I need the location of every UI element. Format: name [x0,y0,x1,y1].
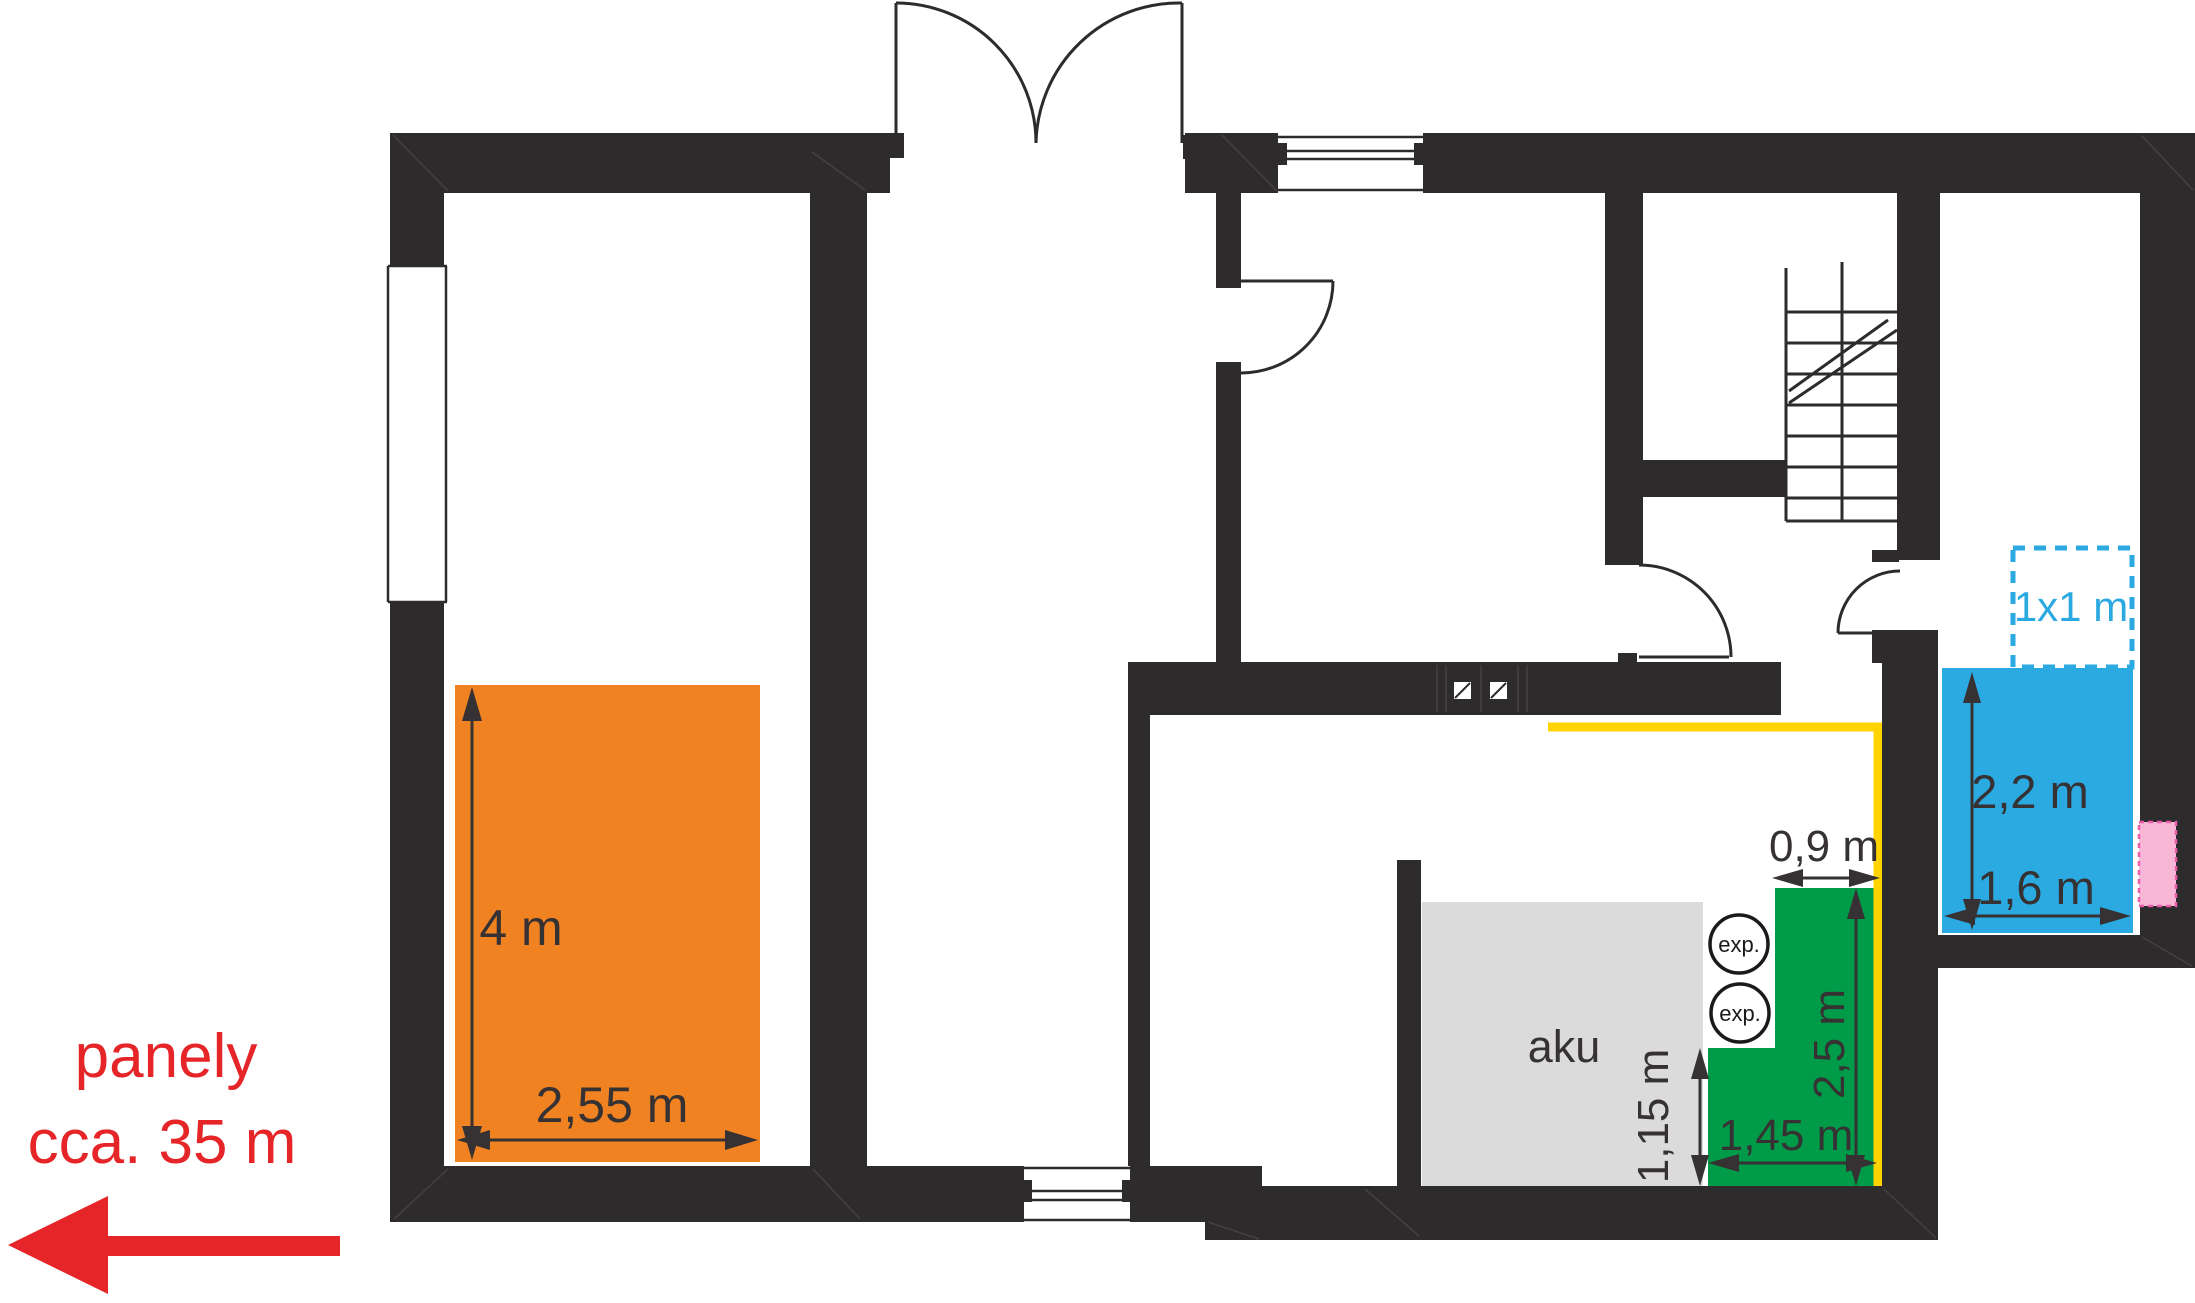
dimension-green-bottom-width: 1,45 m [1708,1111,1877,1172]
flue-symbol [1489,681,1508,700]
wall-segment [1216,372,1241,664]
dimension-label: 2,5 m [1805,989,1854,1099]
wall-segment [390,133,890,193]
door-jamb [1605,552,1643,565]
dimension-label: 2,55 m [536,1077,689,1133]
floor-plan: 4 m 2,55 m 0,9 m 2,5 m 1,45 m 1,15 m 2,2… [0,0,2195,1303]
expansion-vessel-symbol: exp. [1711,984,1769,1042]
door-room-to-stairs [1639,565,1731,657]
door-stairs-to-right [1838,571,1900,633]
door-jamb [1618,653,1637,664]
wall-segment [1937,935,2195,968]
wall-segment [1397,860,1421,1186]
wall-segment [1872,630,1938,663]
window-left [386,265,447,603]
wall-segment [1605,193,1643,552]
panel-note-line1: panely [75,1022,258,1091]
wall-segment [1423,133,2195,193]
panel-direction-arrow [8,1196,340,1294]
pink-marker [2139,822,2176,906]
window-top [1278,133,1423,193]
double-entry-door [896,3,1182,143]
dimension-label: 4 m [479,900,562,956]
dimension-label: 1,6 m [1977,861,2095,914]
wall-segment [1216,193,1241,278]
aku-label: aku [1528,1021,1601,1072]
dimension-label: 1,15 m [1629,1049,1678,1184]
panel-note-line2: cca. 35 m [28,1108,297,1177]
door-jamb [1216,362,1241,372]
door-jamb [1216,278,1241,288]
flue-symbol [1453,681,1472,700]
dimension-label: 0,9 m [1769,822,1879,871]
wall-segment [1643,460,1787,497]
dimension-label: 2,2 m [1971,765,2089,818]
wall-segment [390,1166,1262,1222]
door-jamb [1183,135,1201,159]
door-hall-to-room [1241,281,1333,373]
wall-segment [1128,715,1150,1168]
dimension-green-top-width: 0,9 m [1769,822,1880,887]
dimension-label: 1,45 m [1719,1111,1854,1160]
door-jamb [1872,550,1899,562]
exp-label: exp. [1718,932,1760,957]
exp-label: exp. [1719,1001,1761,1026]
window-bottom [1024,1166,1130,1222]
wall-segment [1897,193,1940,560]
staircase [1786,262,1897,521]
wall-segment [1205,1186,1938,1240]
wall-segment [810,193,867,1168]
floor-plan-page: 4 m 2,55 m 0,9 m 2,5 m 1,45 m 1,15 m 2,2… [0,0,2195,1303]
panel-note: panely cca. 35 m [28,1022,297,1177]
wall-segment [1882,663,1938,1240]
dashed-area-label: 1x1 m [2014,583,2128,630]
expansion-vessel-symbol: exp. [1710,915,1768,973]
